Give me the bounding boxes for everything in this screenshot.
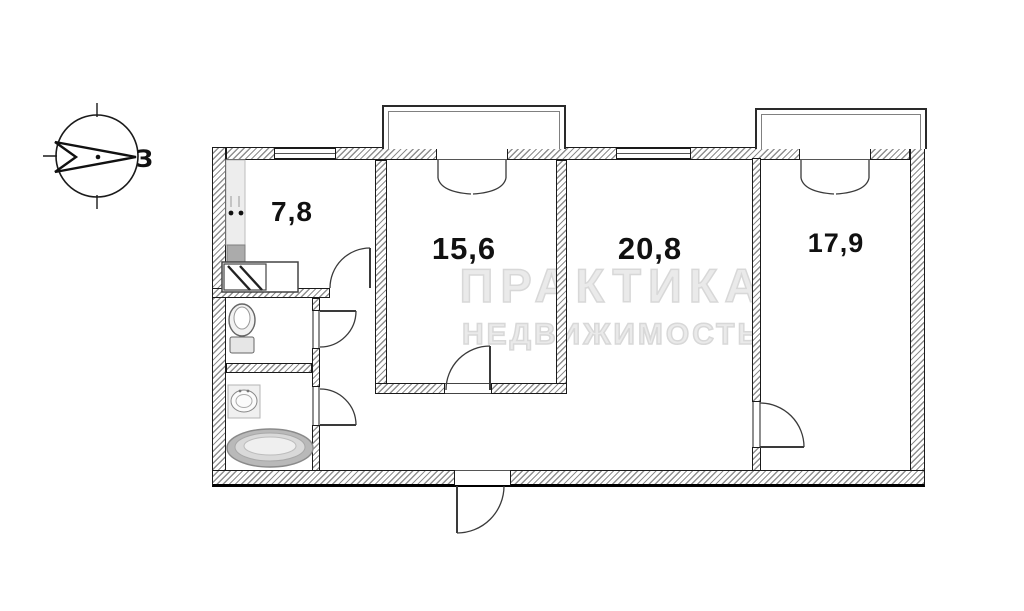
entrance-door-arc [457, 486, 504, 533]
kitchen-door-arc [330, 248, 370, 288]
room-label-15-6: 15,6 [412, 231, 516, 267]
bathtub-basin [244, 437, 296, 455]
wc-door-arc [320, 311, 356, 347]
kitchen-appliance-block [227, 245, 245, 262]
washbasin-bowl-inner [236, 395, 252, 408]
toilet-bowl-inner [234, 307, 250, 329]
washbasin-bowl [231, 390, 257, 412]
room-17-9-door [760, 403, 804, 447]
compass-ticks [43, 103, 97, 209]
french-door-arcs-room-15-6 [438, 178, 506, 194]
toilet-icon [229, 304, 255, 353]
balcony-room-15-6-inner-line [388, 111, 560, 149]
compass-arrow-west [55, 142, 136, 172]
bathroom-door [320, 389, 356, 425]
kitchen-window [275, 147, 335, 160]
compass-circle [56, 115, 138, 197]
bathroom-door-arc [320, 389, 356, 425]
balcony-room-17-9-inner-line [761, 114, 921, 149]
bathtub-mid [235, 433, 305, 461]
kitchen-door [330, 248, 370, 288]
washbasin-icon [228, 385, 260, 418]
door-leaf-wc [312, 311, 320, 348]
wall-kitchen-bottom [212, 288, 330, 298]
room-label-17-9: 17,9 [790, 228, 882, 259]
toilet-tank [230, 337, 254, 353]
wc-door [320, 311, 356, 347]
compass-icon: З [43, 103, 153, 209]
door-leaf-bathroom [312, 387, 320, 425]
room-20-8-window-glazing-line [617, 153, 690, 154]
wall-corridor-segment-1 [312, 298, 320, 311]
bathtub-icon [227, 429, 313, 467]
wall-room-15-6-left [375, 160, 387, 393]
kitchen-counter [226, 160, 245, 245]
wall-outer-left [212, 147, 226, 487]
stove-burner-dot-2 [239, 211, 244, 216]
balcony-french-door-room-17-9 [801, 160, 869, 194]
room-20-8-window [617, 147, 690, 160]
room-label-20-8: 20,8 [598, 231, 702, 267]
room-17-9-door-arc [760, 403, 804, 447]
wall-outer-right [910, 147, 925, 487]
toilet-bowl [229, 304, 255, 336]
door-threshold-room-15-6 [445, 383, 491, 394]
wall-corridor-segment-3 [312, 425, 320, 471]
wall-wc-bathroom-divider [226, 363, 312, 373]
washbasin-counter [228, 385, 260, 418]
wall-bottom-segment-2 [510, 470, 925, 487]
washbasin-tap-dot-1 [239, 390, 242, 393]
wall-divider-20-8-17-9-bottom [752, 447, 761, 471]
wall-corridor-segment-2 [312, 348, 320, 387]
french-door-arcs-room-17-9 [801, 178, 869, 194]
wall-room-15-6-right [556, 160, 567, 393]
wall-room-15-6-bottom-left [375, 383, 445, 394]
wall-divider-20-8-17-9-top [752, 158, 761, 402]
wall-room-15-6-bottom-right [491, 383, 567, 394]
french-door-leaves-room-15-6 [438, 160, 506, 178]
door-leaf-room-17-9 [752, 402, 761, 447]
balcony-french-door-room-15-6 [438, 160, 506, 194]
french-door-leaves-room-17-9 [801, 160, 869, 178]
sink-unit-basin [224, 264, 266, 290]
watermark-line-2: НЕДВИЖИМОСТЬ [422, 318, 802, 352]
kitchen-counter-icon [226, 160, 245, 262]
kitchen-window-glazing-line [275, 153, 335, 154]
sink-unit-hatch [228, 266, 262, 290]
bathtub-rim [227, 429, 313, 467]
compass-west-label: З [136, 145, 153, 173]
kitchen-faucet-marks [231, 196, 239, 207]
wall-top-segment-1 [226, 147, 275, 160]
washbasin-tap-dot-2 [247, 390, 250, 393]
entrance-opening [455, 470, 510, 487]
wall-bottom-segment-1 [212, 470, 455, 487]
compass-center-dot [96, 155, 101, 160]
balcony-room-15-6 [382, 105, 566, 149]
room-label-kitchen: 7,8 [252, 196, 332, 228]
balcony-room-17-9 [755, 108, 927, 149]
stove-burner-dot-1 [229, 211, 234, 216]
floor-plan: ПРАКТИКА НЕДВИЖИМОСТЬ З [0, 0, 1024, 611]
entrance-door [457, 486, 504, 533]
